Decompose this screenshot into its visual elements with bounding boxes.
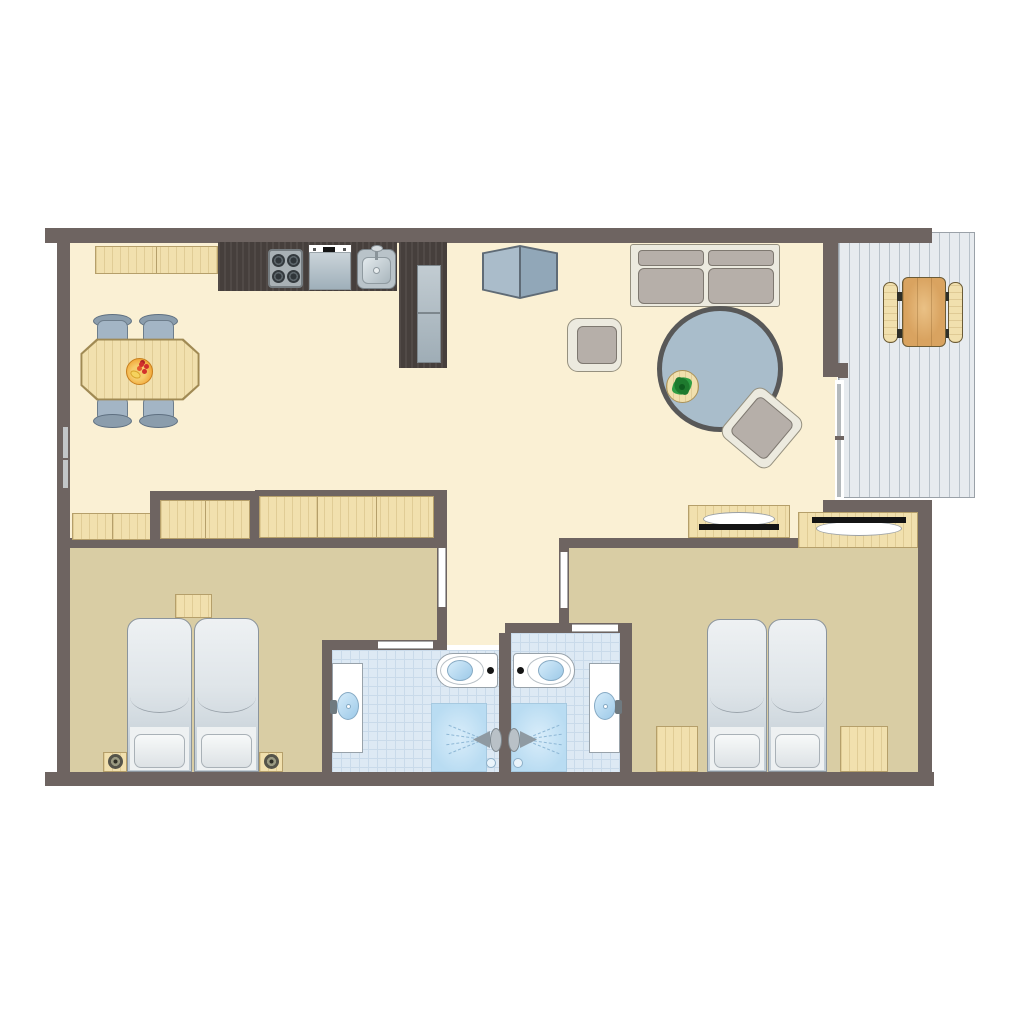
sofa-seat-cushion <box>638 268 704 304</box>
hall-wardrobe-rail <box>699 524 779 530</box>
floor-drain <box>486 758 496 768</box>
door-opening-bedroom-right <box>560 552 568 608</box>
bed-pillow <box>775 734 820 768</box>
fridge-door <box>417 265 441 363</box>
stove-burner <box>287 270 300 283</box>
dining-chair-back <box>93 414 132 428</box>
door-opening-bathroom-right <box>572 624 618 632</box>
fridge-door-divider <box>417 312 441 314</box>
window-left-wall <box>63 460 68 488</box>
window-left-wall <box>63 427 68 458</box>
bedroom-right-wardrobe-hangers <box>816 521 902 536</box>
sofa-back-cushion <box>708 250 774 266</box>
toilet-bowl <box>447 660 473 681</box>
stove-burner <box>272 270 285 283</box>
bedside-table-knob <box>108 754 123 769</box>
washbasin-drain <box>346 704 351 709</box>
wall-left <box>57 240 70 786</box>
wall-bedroom-right-east <box>918 502 932 786</box>
single-bed <box>768 619 827 772</box>
bench <box>948 282 963 343</box>
bedside-table <box>840 726 888 772</box>
bench <box>883 282 898 343</box>
terrace-deck <box>838 232 975 498</box>
sofa-back-cushion <box>638 250 704 266</box>
floor-drain <box>513 758 523 768</box>
cabinet-cube-ridge <box>519 247 521 297</box>
fruit-berry <box>139 362 144 367</box>
bed-pillow <box>714 734 760 768</box>
stove-burner <box>287 254 300 267</box>
dining-chair-back <box>139 414 178 428</box>
wall-living-right <box>823 240 838 377</box>
door-opening-bathroom-left <box>378 641 433 649</box>
wall-band-right <box>559 538 798 548</box>
wall-step <box>838 363 848 378</box>
single-bed <box>127 618 192 772</box>
kitchen-counter-divider <box>156 247 157 273</box>
bed-fold-line <box>130 697 189 713</box>
bed-fold-line <box>771 697 824 713</box>
closet-cabinet-divider <box>205 501 206 538</box>
wall-terrace-bottom <box>823 500 932 512</box>
bedside-table-knob <box>264 754 279 769</box>
toilet-bowl <box>538 660 564 681</box>
bedside-table <box>656 726 698 772</box>
floor-plan <box>0 0 1024 1024</box>
potted-plant-center <box>679 384 685 390</box>
bed-pillow <box>201 734 252 768</box>
door-opening-bedroom-left <box>438 548 446 607</box>
sliding-door-glass <box>837 440 841 497</box>
wardrobe-3door <box>259 496 434 538</box>
washbasin-drain <box>603 704 608 709</box>
faucet-stem <box>375 251 378 260</box>
bed-fold-line <box>710 697 764 713</box>
dishwasher-knob <box>313 248 316 251</box>
bed-pillow <box>134 734 185 768</box>
sofa-seat-cushion <box>708 268 774 304</box>
toilet-flush-button <box>517 667 524 674</box>
sink-drain <box>373 267 380 274</box>
shower-head-base <box>508 728 520 752</box>
foot-shelf <box>175 594 212 618</box>
dishwasher-knob <box>343 248 346 251</box>
wardrobe-3door-divider <box>317 497 318 537</box>
wall-bottom <box>45 772 934 786</box>
stove-burner <box>272 254 285 267</box>
wall-bathroom-center <box>499 633 511 786</box>
bedroom-right-wardrobe-rail <box>812 517 906 523</box>
bed-fold-line <box>197 697 256 713</box>
washbasin-faucet <box>615 700 622 714</box>
washbasin-faucet <box>330 700 337 714</box>
sliding-door-glass <box>837 384 841 436</box>
shower-head-base <box>490 728 502 752</box>
picnic-table <box>902 277 946 347</box>
wall-top <box>45 228 932 243</box>
armchair-cushion <box>577 326 617 364</box>
toilet-flush-button <box>487 667 494 674</box>
sideboard-divider <box>112 514 113 539</box>
wardrobe-3door-divider <box>376 497 377 537</box>
single-bed <box>194 618 259 772</box>
sliding-door-divider <box>835 436 844 440</box>
dishwasher-display <box>323 247 335 252</box>
single-bed <box>707 619 767 772</box>
